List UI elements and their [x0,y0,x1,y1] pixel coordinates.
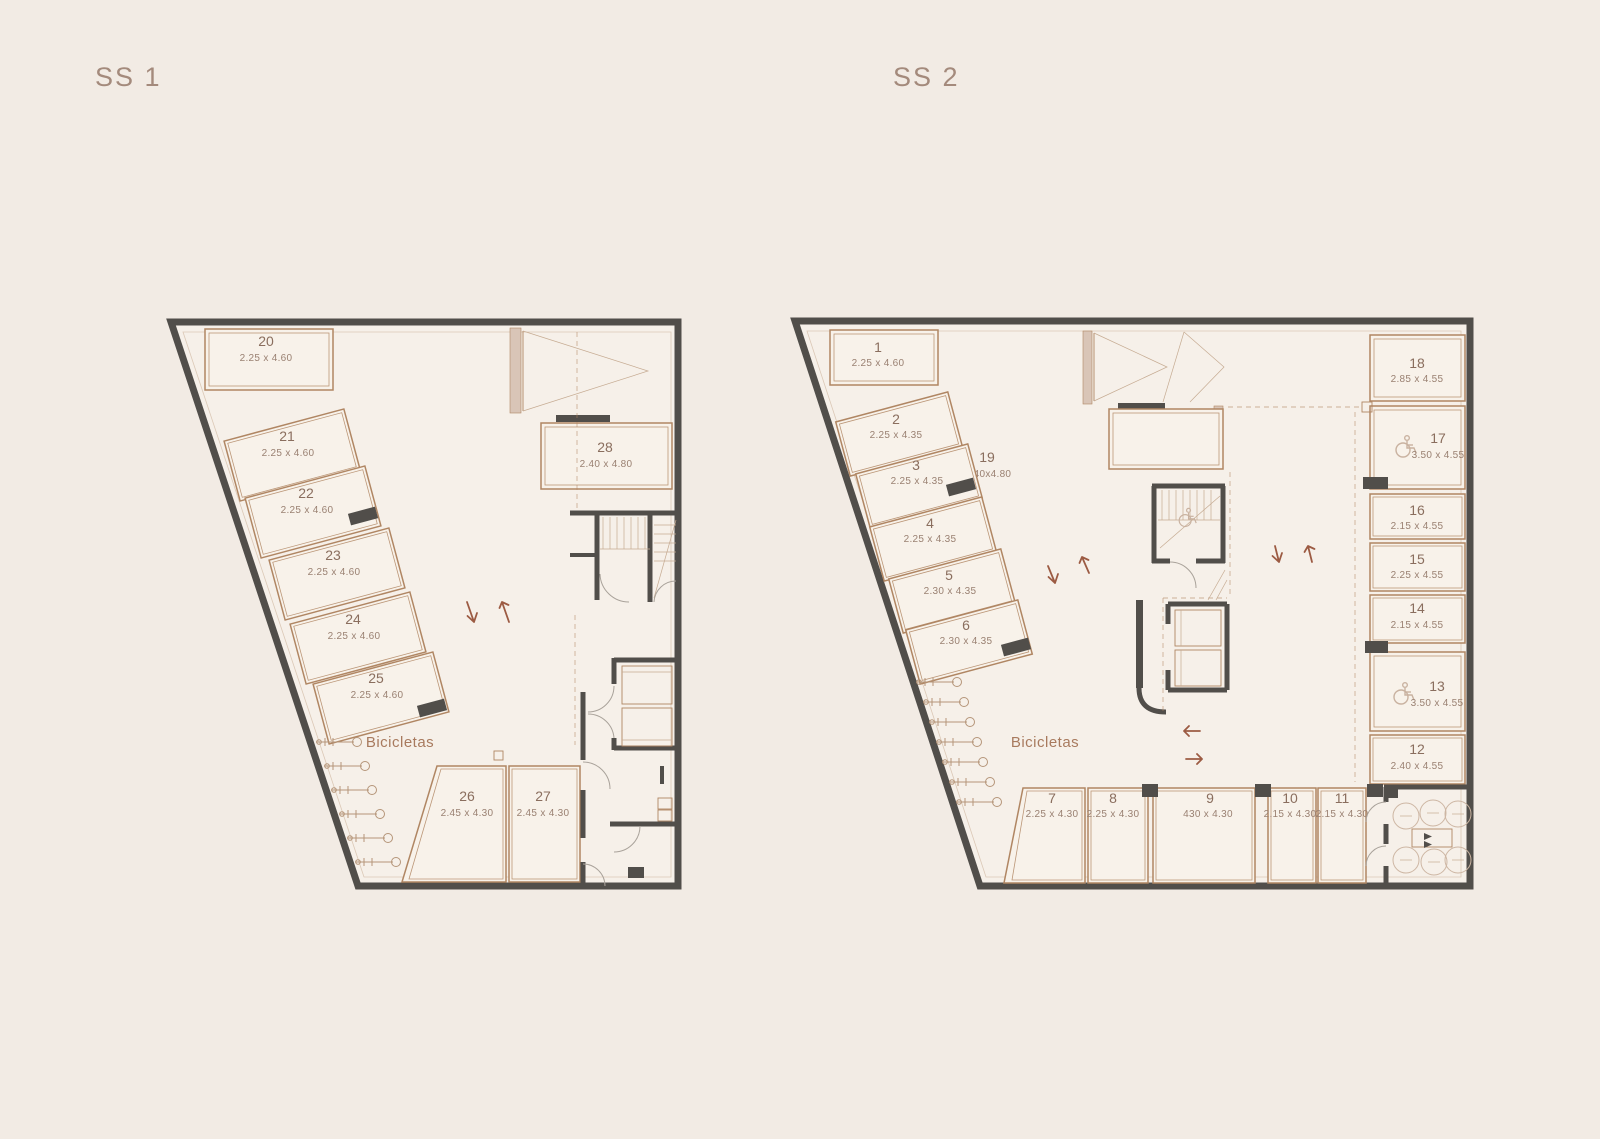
space-14-number: 14 [1409,600,1425,616]
space-16-number: 16 [1409,502,1425,518]
space-4-number: 4 [926,515,934,531]
parking-space-12: 12 2.40 x 4.55 [1370,735,1465,784]
space-16-dim: 2.15 x 4.55 [1391,521,1444,532]
space-21-dim: 2.25 x 4.60 [262,448,315,459]
space-21-number: 21 [279,428,295,444]
floorplan-canvas: SS 1 SS 2 [0,0,1600,1139]
parking-space-20: 20 2.25 x 4.60 [205,329,333,390]
space-8-number: 8 [1109,790,1117,806]
parking-space-9: 9 430 x 4.30 [1153,788,1255,883]
space-6-number: 6 [962,617,970,633]
plan-ss1: 20 2.25 x 4.60 21 2.25 x 4.60 22 2.25 x … [171,322,678,886]
space-10-number: 10 [1282,790,1298,806]
space-25-number: 25 [368,670,384,686]
space-22-number: 22 [298,485,314,501]
space-2-dim: 2.25 x 4.35 [870,430,923,441]
space-14-dim: 2.15 x 4.55 [1391,620,1444,631]
parking-space-19 [1109,409,1223,469]
space-19-number: 19 [979,449,995,465]
space-9-number: 9 [1206,790,1214,806]
space-24-dim: 2.25 x 4.60 [328,631,381,642]
space-7-number: 7 [1048,790,1056,806]
space-1-dim: 2.25 x 4.60 [852,358,905,369]
space-12-dim: 2.40 x 4.55 [1391,761,1444,772]
ss1-outline [171,322,678,886]
parking-space-1: 1 2.25 x 4.60 [830,330,938,385]
parking-space-16: 16 2.15 x 4.55 [1370,494,1465,539]
space-8-dim: 2.25 x 4.30 [1087,809,1140,820]
space-15-number: 15 [1409,551,1425,567]
space-13-number: 13 [1429,678,1445,694]
space-10-dim: 2.15 x 4.30 [1264,809,1317,820]
space-9-dim: 430 x 4.30 [1183,809,1233,820]
space-17-number: 17 [1430,430,1446,446]
parking-space-8: 8 2.25 x 4.30 [1087,788,1148,883]
space-6-dim: 2.30 x 4.35 [940,636,993,647]
space-17-dim: 3.50 x 4.55 [1412,450,1465,461]
space-3-dim: 2.25 x 4.35 [891,476,944,487]
space-18-dim: 2.85 x 4.55 [1391,374,1444,385]
parking-space-27: 27 2.45 x 4.30 [509,766,580,882]
space-26-number: 26 [459,788,475,804]
space-23-number: 23 [325,547,341,563]
space-24-number: 24 [345,611,361,627]
space-7-dim: 2.25 x 4.30 [1026,809,1079,820]
space-13-dim: 3.50 x 4.55 [1411,698,1464,709]
space-1-number: 1 [874,339,882,355]
space-20-dim: 2.25 x 4.60 [240,353,293,364]
space-3-number: 3 [912,457,920,473]
space-12-number: 12 [1409,741,1425,757]
space-5-dim: 2.30 x 4.35 [924,586,977,597]
parking-space-10: 10 2.15 x 4.30 [1264,788,1317,883]
space-28-dim: 2.40 x 4.80 [580,459,633,470]
parking-space-18: 18 2.85 x 4.55 [1370,335,1465,401]
parking-space-14: 14 2.15 x 4.55 [1370,595,1465,643]
space-11-dim: 2.15 x 4.30 [1316,809,1369,820]
space-27-number: 27 [535,788,551,804]
parking-space-11: 11 2.15 x 4.30 [1316,788,1369,883]
parking-space-17: 17 3.50 x 4.55 [1370,406,1465,489]
ss2-bikes-label: Bicicletas [1011,734,1079,751]
floorplan-drawing: 20 2.25 x 4.60 21 2.25 x 4.60 22 2.25 x … [0,0,1600,1139]
space-5-number: 5 [945,567,953,583]
space-23-dim: 2.25 x 4.60 [308,567,361,578]
parking-space-15: 15 2.25 x 4.55 [1370,543,1465,591]
space-2-number: 2 [892,411,900,427]
space-28-number: 28 [597,439,613,455]
parking-space-13: 13 3.50 x 4.55 [1370,652,1465,731]
space-26-dim: 2.45 x 4.30 [441,808,494,819]
space-11-number: 11 [1335,790,1350,806]
plan-ss2: 19 2.40x4.80 1 2.25 x 4.60 2 2.25 x 4.35… [795,321,1471,886]
parking-space-28: 28 2.40 x 4.80 [541,423,672,489]
space-15-dim: 2.25 x 4.55 [1391,570,1444,581]
ss1-bikes-label: Bicicletas [366,734,434,751]
space-25-dim: 2.25 x 4.60 [351,690,404,701]
space-20-number: 20 [258,333,274,349]
space-18-number: 18 [1409,355,1425,371]
space-22-dim: 2.25 x 4.60 [281,505,334,516]
space-27-dim: 2.45 x 4.30 [517,808,570,819]
space-4-dim: 2.25 x 4.35 [904,534,957,545]
